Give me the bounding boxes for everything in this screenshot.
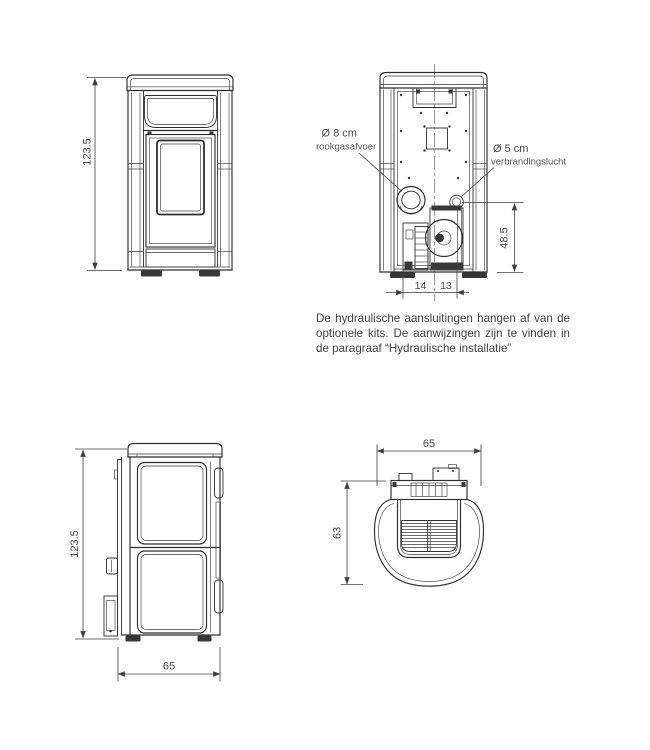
fan-assembly <box>426 206 464 271</box>
rear-air-height-dimension: 48.5 <box>462 203 524 273</box>
front-stove-outline <box>127 75 233 277</box>
top-width-label: 65 <box>423 438 435 450</box>
rear-foot-right <box>462 273 487 279</box>
front-door-glass <box>157 141 204 215</box>
rear-view: Ø 8 cm rookgasafvoer Ø 5 cm verbrandings… <box>316 64 566 301</box>
page: { "diagram": { "type": "stove-technical-… <box>0 0 650 750</box>
rear-access-plate <box>427 128 448 149</box>
front-view: 123.5 <box>82 75 234 277</box>
offset-right-label: 13 <box>440 280 452 292</box>
side-panel-lower <box>138 551 207 633</box>
front-foot-right <box>199 271 220 277</box>
rear-foot-left <box>390 273 415 279</box>
side-depth-label: 65 <box>163 661 175 673</box>
front-foot-left <box>141 271 162 277</box>
flue-callout: Ø 8 cm rookgasafvoer <box>316 128 402 192</box>
top-grill <box>402 521 457 552</box>
hydraulic-note-line: optionele kits. De aanwijzingen zijn te … <box>316 327 570 342</box>
side-hinge-lower <box>215 580 224 613</box>
side-panel-upper <box>138 463 207 545</box>
top-door-frame <box>398 500 461 558</box>
top-depth-label: 63 <box>332 527 344 539</box>
side-rear-knob <box>107 558 118 574</box>
side-foot-right <box>198 636 212 642</box>
hydraulic-note-line: De hydraulische aansluitingen hangen af … <box>316 312 570 327</box>
side-foot-left <box>126 636 141 642</box>
top-tab-right <box>433 468 459 481</box>
side-stove-outline <box>104 444 223 642</box>
side-depth-dimension: 65 <box>118 647 220 682</box>
auger-motor-box <box>403 223 428 270</box>
hydraulic-note: De hydraulische aansluitingen hangen af … <box>316 312 570 356</box>
rear-stove-outline <box>380 73 487 279</box>
top-stove-outline <box>375 465 484 587</box>
flue-diameter-label: Ø 8 cm <box>322 128 357 140</box>
front-height-dimension: 123.5 <box>82 78 127 271</box>
top-body-outer <box>375 500 484 587</box>
top-width-dimension: 65 <box>377 438 481 486</box>
air-diameter-label: Ø 5 cm <box>493 143 528 155</box>
side-hinge-upper <box>215 468 224 498</box>
air-callout: Ø 5 cm verbrandingslucht <box>461 143 566 197</box>
air-height-label: 48.5 <box>499 227 511 248</box>
hydraulic-note-line: de paragraaf “Hydraulische installatie” <box>316 342 570 357</box>
rear-screws <box>400 94 467 179</box>
side-view: 123.5 <box>69 444 223 682</box>
air-name-label: verbrandingslucht <box>491 157 566 168</box>
top-tab-left <box>399 474 412 481</box>
flue-name-label: rookgasafvoer <box>316 142 376 153</box>
side-height-label: 123.5 <box>69 530 81 558</box>
stove-technical-drawing: 123.5 <box>0 0 650 750</box>
top-view: 65 <box>332 438 484 586</box>
offset-left-label: 14 <box>415 280 427 292</box>
side-height-dimension: 123.5 <box>69 449 127 639</box>
top-depth-dimension: 63 <box>332 481 387 585</box>
front-height-label: 123.5 <box>82 138 94 166</box>
front-upper-panel <box>145 96 217 128</box>
